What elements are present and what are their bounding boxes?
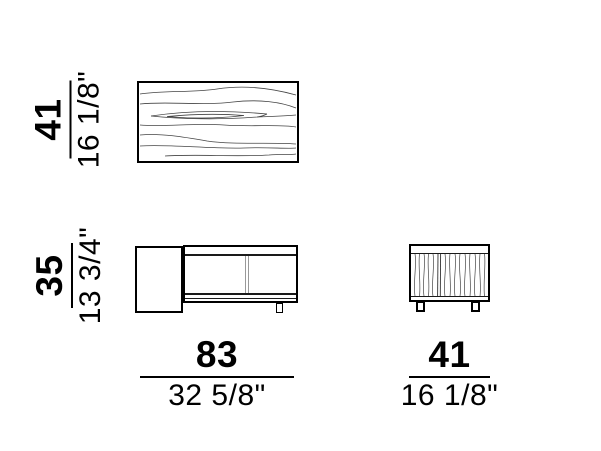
fraction-line: [70, 81, 72, 159]
fraction-line: [140, 376, 294, 378]
fraction-line: [409, 376, 490, 378]
side-view-panel: [409, 244, 490, 302]
door-bottom-line: [185, 293, 296, 295]
dimension-front-height: 35 13 3/4": [31, 243, 106, 308]
plinth-line: [185, 298, 296, 299]
cabinet-leg-side-left: [416, 301, 425, 312]
wood-grain-horizontal: [139, 83, 297, 161]
dimension-value-cm: 41: [30, 98, 67, 140]
door-gap-line: [245, 256, 246, 294]
dimension-value-cm: 35: [31, 254, 68, 296]
dimension-value-inches: 32 5/8": [168, 381, 266, 411]
wood-grain-vertical: [411, 254, 487, 296]
dimension-value-cm: 41: [428, 336, 470, 373]
dimension-value-cm: 83: [196, 336, 238, 373]
dimension-value-inches: 16 1/8": [401, 381, 499, 411]
dimension-front-width: 83 32 5/8": [140, 336, 294, 411]
plinth-line: [411, 296, 488, 297]
top-panel-line: [185, 254, 296, 256]
dimension-value-inches: 13 3/4": [76, 227, 106, 325]
fraction-line: [71, 243, 73, 308]
top-view-panel: [137, 81, 299, 163]
dimension-top-depth: 41 16 1/8": [30, 81, 105, 159]
cabinet-leg-side-right: [471, 301, 480, 312]
front-view-side-box: [135, 246, 183, 313]
dimension-drawing-canvas: 41 16 1/8" 35 13 3/4" 83 32 5/8": [0, 0, 601, 451]
dimension-value-inches: 16 1/8": [75, 71, 105, 169]
dimension-side-depth: 41 16 1/8": [409, 336, 490, 411]
cabinet-leg-front: [276, 303, 283, 313]
front-view-cabinet-body: [183, 245, 298, 303]
door-gap-line: [248, 256, 249, 294]
